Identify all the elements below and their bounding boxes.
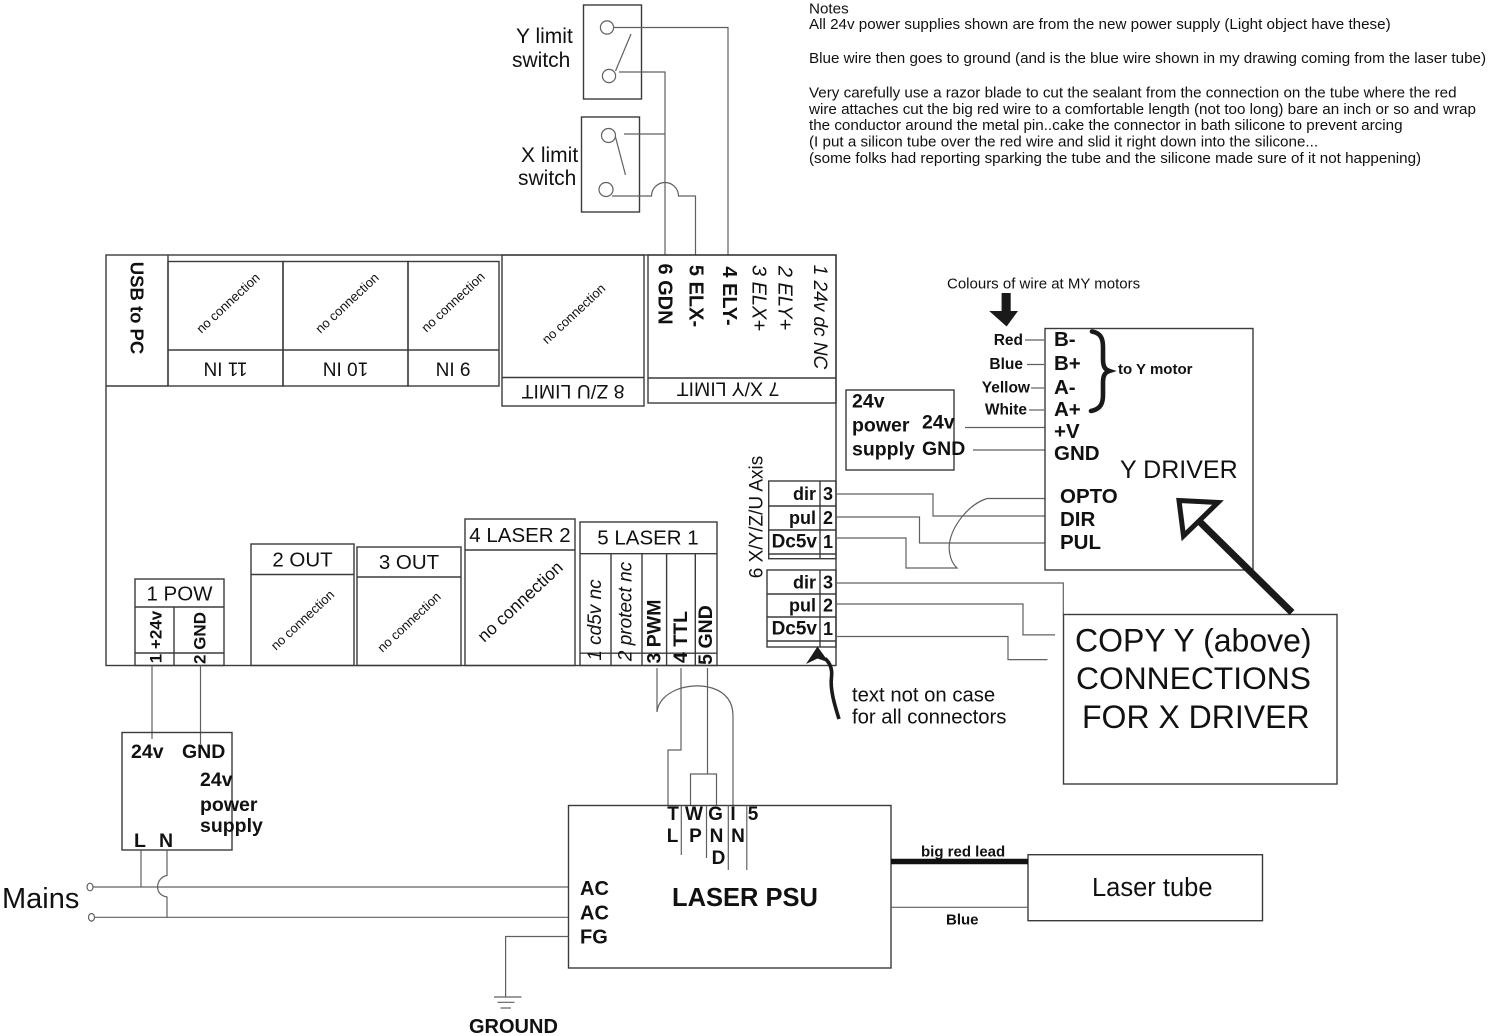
svg-text:GROUND: GROUND <box>469 1016 558 1036</box>
svg-text:24v: 24v <box>922 412 955 434</box>
svg-text:text not on case: text not on case <box>852 685 995 707</box>
svg-text:USB to PC: USB to PC <box>127 262 148 355</box>
svg-text:6 X/Y/Z/U Axis: 6 X/Y/Z/U Axis <box>747 456 768 578</box>
svg-text:big red lead: big red lead <box>921 844 1005 861</box>
svg-text:(I put a silicon tube over the: (I put a silicon tube over the red wire … <box>809 134 1318 151</box>
svg-text:switch: switch <box>512 49 570 72</box>
svg-text:CONNECTIONS: CONNECTIONS <box>1076 660 1311 696</box>
svg-text:dir: dir <box>793 573 816 593</box>
svg-text:FOR X DRIVER: FOR X DRIVER <box>1082 699 1310 735</box>
svg-text:B+: B+ <box>1054 352 1081 375</box>
svg-text:X limit: X limit <box>521 144 578 167</box>
svg-text:for all connectors: for all connectors <box>852 707 1006 729</box>
svg-text:T: T <box>667 804 679 825</box>
svg-text:COPY Y (above): COPY Y (above) <box>1075 623 1312 659</box>
svg-text:N: N <box>159 830 173 852</box>
svg-text:Laser tube: Laser tube <box>1092 874 1213 902</box>
svg-text:OPTO: OPTO <box>1060 485 1118 508</box>
svg-text:P: P <box>689 826 702 847</box>
svg-text:2 protect nc: 2 protect nc <box>616 561 637 662</box>
svg-text:11 IN: 11 IN <box>203 358 247 379</box>
svg-text:2 OUT: 2 OUT <box>272 549 333 572</box>
svg-text:1: 1 <box>823 532 833 552</box>
svg-text:2: 2 <box>823 508 833 528</box>
svg-text:Dc5v: Dc5v <box>772 619 818 640</box>
svg-text:dir: dir <box>793 484 816 504</box>
svg-text:5 GND: 5 GND <box>695 605 717 665</box>
svg-text:pul: pul <box>789 508 816 528</box>
svg-text:pul: pul <box>789 596 816 616</box>
svg-text:Red: Red <box>994 332 1023 349</box>
svg-text:3 ELX+: 3 ELX+ <box>748 265 770 331</box>
svg-text:2 ELY+: 2 ELY+ <box>774 265 796 330</box>
svg-text:AC: AC <box>580 878 609 900</box>
svg-text:Mains: Mains <box>2 883 79 915</box>
svg-text:supply: supply <box>200 815 263 837</box>
svg-text:4 LASER 2: 4 LASER 2 <box>469 524 570 547</box>
svg-text:the conductor around the metal: the conductor around the metal pin..cake… <box>809 117 1403 134</box>
svg-text:White: White <box>985 402 1028 419</box>
svg-text:GND: GND <box>182 741 225 763</box>
svg-text:4 TTL: 4 TTL <box>670 611 692 663</box>
svg-text:10 IN: 10 IN <box>323 358 368 379</box>
svg-text:Dc5v: Dc5v <box>772 532 818 553</box>
svg-text:1 cd5v nc: 1 cd5v nc <box>585 579 606 661</box>
svg-text:8 Z/U LIMIT: 8 Z/U LIMIT <box>521 380 624 402</box>
svg-text:Y DRIVER: Y DRIVER <box>1120 456 1238 484</box>
svg-text:DIR: DIR <box>1060 508 1096 531</box>
svg-text:Notes: Notes <box>809 1 849 18</box>
svg-text:GND: GND <box>922 438 965 460</box>
svg-text:D: D <box>712 848 726 869</box>
svg-text:1: 1 <box>823 619 833 639</box>
svg-text:W: W <box>685 804 703 825</box>
svg-text:wire attaches cut the big red: wire attaches cut the big red wire to a … <box>808 101 1476 118</box>
svg-text:switch: switch <box>518 167 576 190</box>
svg-text:24v: 24v <box>852 391 885 413</box>
svg-text:2 GND: 2 GND <box>191 612 210 664</box>
svg-text:B-: B- <box>1054 328 1076 351</box>
svg-text:7 X/Y LIMIT: 7 X/Y LIMIT <box>677 378 780 400</box>
svg-text:24v: 24v <box>200 769 233 791</box>
svg-text:PUL: PUL <box>1060 531 1101 554</box>
svg-text:1 +24v: 1 +24v <box>147 610 166 663</box>
svg-text:L: L <box>134 830 146 852</box>
svg-text:+V: +V <box>1054 420 1080 443</box>
svg-text:24v: 24v <box>131 741 164 763</box>
svg-text:L: L <box>667 826 679 847</box>
svg-text:1 POW: 1 POW <box>146 583 213 606</box>
svg-text:LASER PSU: LASER PSU <box>672 884 818 912</box>
svg-text:I: I <box>730 804 735 825</box>
svg-text:4 ELY-: 4 ELY- <box>718 266 740 325</box>
svg-text:5: 5 <box>748 804 759 825</box>
svg-text:Blue: Blue <box>989 356 1023 373</box>
svg-text:3: 3 <box>823 484 833 504</box>
svg-text:Yellow: Yellow <box>982 380 1031 397</box>
svg-text:Colours of wire at MY motors: Colours of wire at MY motors <box>947 276 1140 293</box>
svg-text:5 LASER 1: 5 LASER 1 <box>597 527 698 550</box>
svg-text:AC: AC <box>580 903 609 925</box>
svg-text:supply: supply <box>852 439 915 461</box>
svg-text:1 24v dc NC: 1 24v dc NC <box>809 265 830 370</box>
svg-text:6 GDN: 6 GDN <box>654 263 676 324</box>
svg-text:3 PWM: 3 PWM <box>644 600 666 664</box>
svg-text:Y limit: Y limit <box>516 25 573 48</box>
svg-text:A-: A- <box>1054 376 1076 399</box>
svg-text:3 OUT: 3 OUT <box>379 551 440 574</box>
svg-text:Blue: Blue <box>946 912 979 929</box>
svg-text:A+: A+ <box>1054 398 1081 421</box>
svg-text:5 ELX-: 5 ELX- <box>684 265 706 327</box>
svg-text:(some folks had reporting spar: (some folks had reporting sparking the t… <box>809 150 1421 167</box>
svg-text:G: G <box>708 804 723 825</box>
svg-text:N: N <box>731 826 745 847</box>
svg-text:power: power <box>200 794 258 816</box>
svg-text:GND: GND <box>1054 442 1100 465</box>
svg-text:Very carefully use a razor bla: Very carefully use a razor blade to cut … <box>809 85 1457 102</box>
svg-text:power: power <box>852 415 910 437</box>
svg-text:2: 2 <box>823 596 833 616</box>
svg-text:9 IN: 9 IN <box>436 358 471 379</box>
svg-text:3: 3 <box>823 573 833 593</box>
svg-text:Blue wire then goes to ground: Blue wire then goes to ground (and is th… <box>809 50 1486 67</box>
svg-text:to Y motor: to Y motor <box>1118 361 1193 378</box>
svg-text:FG: FG <box>580 927 608 949</box>
svg-text:All 24v power supplies shown a: All 24v power supplies shown are from th… <box>809 16 1391 33</box>
svg-text:N: N <box>710 826 724 847</box>
